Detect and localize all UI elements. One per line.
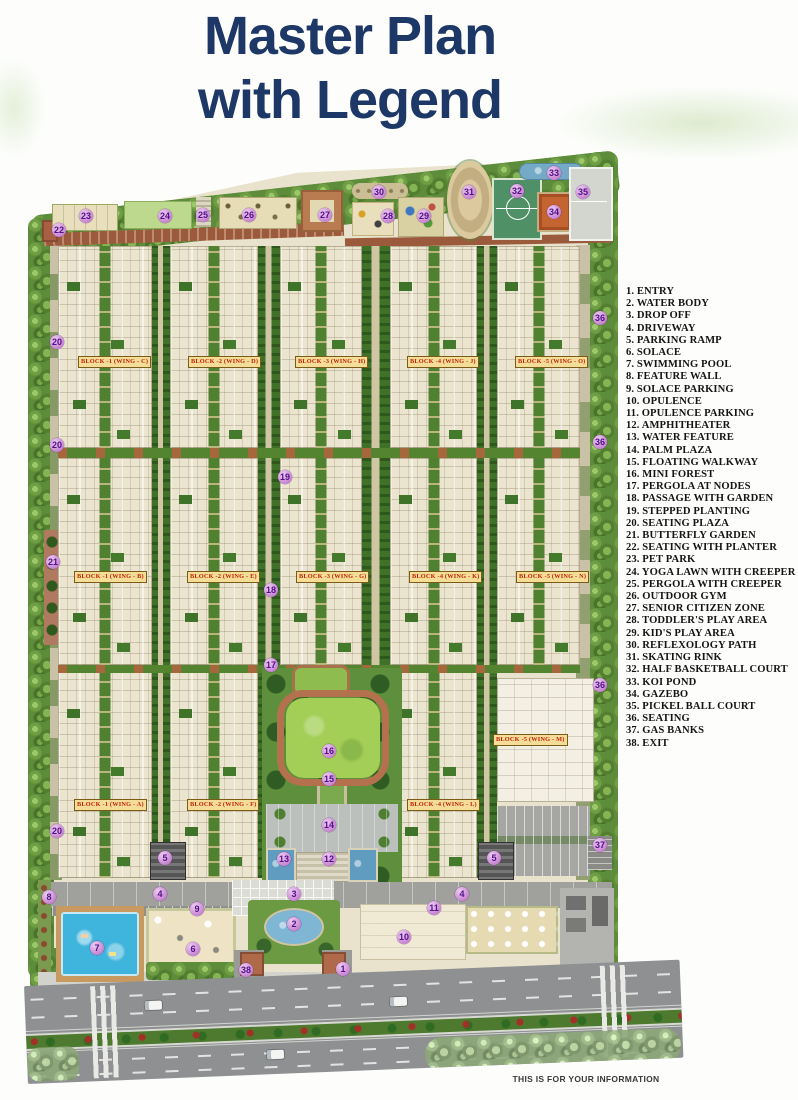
plan-marker-16: 16 [322,744,336,758]
plan-marker-23: 23 [79,209,93,223]
legend-list: 1. ENTRY2. WATER BODY3. DROP OFF4. DRIVE… [626,286,798,750]
court-mid-line [571,201,607,202]
opulence-terrace [466,906,558,954]
plan-marker-6: 6 [186,942,200,956]
block-label: BLOCK -2 (WING - F) [187,799,259,811]
block-cell [497,458,580,665]
block-cell [58,458,152,665]
plan-marker-36: 36 [593,311,607,325]
block-cell [170,246,258,448]
car [267,1050,284,1060]
plan-marker-17: 17 [264,658,278,672]
legend-item-9: 9. SOLACE PARKING [626,384,798,396]
legend-item-6: 6. SOLACE [626,347,798,359]
plan-marker-28: 28 [381,209,395,223]
legend-item-13: 13. WATER FEATURE [626,432,798,444]
footer-note: THIS IS FOR YOUR INFORMATION [495,1074,677,1084]
plan-marker-19: 19 [278,470,292,484]
mini-forest-lawn [286,698,380,778]
legend-item-31: 31. SKATING RINK [626,652,798,664]
legend-item-37: 37. GAS BANKS [626,725,798,737]
plan-marker-22: 22 [52,223,66,237]
plan-marker-3: 3 [287,887,301,901]
legend-item-17: 17. PERGOLA AT NODES [626,481,798,493]
block-cell [58,672,152,878]
legend-item-27: 27. SENIOR CITIZEN ZONE [626,603,798,615]
skating-rink [447,161,493,239]
plan-marker-35: 35 [576,185,590,199]
legend-item-20: 20. SEATING PLAZA [626,518,798,530]
legend-item-10: 10. OPULENCE [626,396,798,408]
plan-marker-26: 26 [242,208,256,222]
block-cell [497,246,580,448]
plan-marker-37: 37 [593,838,607,852]
block-label: BLOCK -4 (WING - L) [407,799,480,811]
plan-marker-20: 20 [50,824,64,838]
legend-item-23: 23. PET PARK [626,554,798,566]
plan-marker-14: 14 [322,818,336,832]
outdoor-gym [219,197,297,229]
plan-marker-13: 13 [277,852,291,866]
plan-marker-11: 11 [427,901,441,915]
legend-item-32: 32. HALF BASKETBALL COURT [626,664,798,676]
legend-item-3: 3. DROP OFF [626,310,798,322]
legend-item-25: 25. PERGOLA WITH CREEPER [626,579,798,591]
solace-deck [146,908,236,968]
plan-marker-8: 8 [42,890,56,904]
block-label: BLOCK -5 (WING - M) [493,734,568,746]
legend-item-8: 8. FEATURE WALL [626,371,798,383]
floating-walkway [317,786,347,804]
legend-item-16: 16. MINI FOREST [626,469,798,481]
block-label: BLOCK -3 (WING - G) [296,571,369,583]
zebra-crossing [90,985,120,1078]
legend-item-7: 7. SWIMMING POOL [626,359,798,371]
legend-item-33: 33. KOI POND [626,677,798,689]
block-label: BLOCK -1 (WING - B) [74,571,147,583]
plan-marker-5: 5 [158,851,172,865]
plan-marker-36: 36 [593,678,607,692]
plan-marker-25: 25 [196,208,210,222]
legend-item-18: 18. PASSAGE WITH GARDEN [626,493,798,505]
plan-marker-4: 4 [153,887,167,901]
legend-item-21: 21. BUTTERFLY GARDEN [626,530,798,542]
legend-item-26: 26. OUTDOOR GYM [626,591,798,603]
plan-marker-27: 27 [318,208,332,222]
plan-marker-12: 12 [322,852,336,866]
page: { "title": {"line1": "Master Plan", "lin… [0,0,798,1100]
block-label: BLOCK -1 (WING - A) [74,799,147,811]
car [390,997,407,1007]
plan-marker-15: 15 [322,772,336,786]
pickle-ball-court [569,167,613,241]
plan-marker-20: 20 [50,438,64,452]
block-cell [390,672,477,878]
block-cell [390,246,477,448]
block-label: BLOCK -5 (WING - N) [516,571,589,583]
block-label: BLOCK -3 (WING - H) [295,356,368,368]
block-label: BLOCK -4 (WING - J) [407,356,479,368]
legend-item-5: 5. PARKING RAMP [626,335,798,347]
block-label: BLOCK -2 (WING - E) [187,571,260,583]
plan-marker-34: 34 [547,205,561,219]
block-cell [170,458,258,665]
plan-marker-33: 33 [547,166,561,180]
plan-marker-38: 38 [239,963,253,977]
plan-marker-10: 10 [397,930,411,944]
block-cell [280,246,362,448]
plan-marker-5: 5 [487,851,501,865]
plan-marker-32: 32 [510,184,524,198]
legend-item-15: 15. FLOATING WALKWAY [626,457,798,469]
block-label: BLOCK -4 (WING - K) [409,571,482,583]
plan-marker-21: 21 [46,555,60,569]
plan-marker-7: 7 [90,941,104,955]
legend-item-1: 1. ENTRY [626,286,798,298]
plan-marker-4: 4 [455,887,469,901]
court-line [496,208,538,209]
plan-marker-1: 1 [336,962,350,976]
legend-item-29: 29. KID'S PLAY AREA [626,628,798,640]
legend-item-38: 38. EXIT [626,738,798,750]
block-cell [390,458,477,665]
block-label: BLOCK -1 (WING - C) [78,356,151,368]
garden-band [58,448,580,458]
roadside-trees-left [27,1046,80,1082]
opulence-building [360,904,466,960]
green-corridor [477,246,497,878]
legend-item-35: 35. PICKEL BALL COURT [626,701,798,713]
legend-item-30: 30. REFLEXOLOGY PATH [626,640,798,652]
legend-item-11: 11. OPULENCE PARKING [626,408,798,420]
legend-item-4: 4. DRIVEWAY [626,323,798,335]
block-cell [280,458,362,665]
legend-item-28: 28. TODDLER'S PLAY AREA [626,615,798,627]
utility-yard [560,888,614,966]
plan-marker-20: 20 [50,335,64,349]
block-label: BLOCK -2 (WING - D) [188,356,261,368]
legend-item-36: 36. SEATING [626,713,798,725]
water-feature-right [350,850,376,880]
plan-marker-24: 24 [158,209,172,223]
legend-item-2: 2. WATER BODY [626,298,798,310]
legend-item-24: 24. YOGA LAWN WITH CREEPER [626,567,798,579]
legend-item-19: 19. STEPPED PLANTING [626,506,798,518]
legend-item-22: 22. SEATING WITH PLANTER [626,542,798,554]
legend-panel: 1. ENTRY2. WATER BODY3. DROP OFF4. DRIVE… [626,286,798,750]
plan-marker-2: 2 [287,917,301,931]
green-corridor [152,246,170,878]
block-label: BLOCK -5 (WING - O) [515,356,588,368]
plan-marker-29: 29 [417,209,431,223]
car [145,1001,162,1011]
plan-marker-18: 18 [264,583,278,597]
plan-marker-30: 30 [372,185,386,199]
block-cell [58,246,152,448]
legend-item-12: 12. AMPHITHEATER [626,420,798,432]
plan-marker-31: 31 [462,185,476,199]
legend-item-34: 34. GAZEBO [626,689,798,701]
legend-item-14: 14. PALM PLAZA [626,445,798,457]
plan-marker-9: 9 [190,902,204,916]
plan-marker-36: 36 [593,435,607,449]
